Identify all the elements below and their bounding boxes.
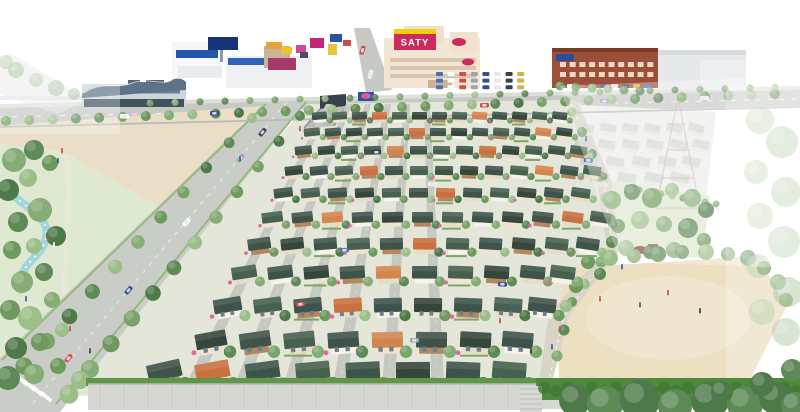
roof-light — [448, 266, 473, 272]
parked-car — [459, 85, 466, 89]
garden-flowers — [270, 199, 273, 202]
house — [372, 112, 387, 123]
building-window — [599, 72, 605, 77]
garden-flowers — [292, 156, 295, 159]
tree-highlight — [519, 153, 522, 156]
tree-highlight — [400, 277, 405, 282]
tree-highlight — [695, 384, 714, 403]
parked-car — [506, 79, 513, 83]
tree-highlight — [509, 134, 512, 137]
tree-highlight — [522, 91, 526, 95]
tree-highlight — [303, 174, 307, 178]
parked-car — [506, 72, 513, 76]
person-head — [89, 348, 91, 350]
house — [332, 111, 348, 123]
garden-hedge — [435, 180, 451, 182]
tree-highlight — [538, 98, 543, 103]
tree-highlight — [555, 311, 561, 317]
tree-highlight — [453, 174, 457, 178]
tree-highlight — [33, 334, 42, 343]
tree-highlight — [404, 134, 407, 137]
tree-highlight — [283, 221, 287, 225]
tree-highlight — [83, 361, 92, 370]
tree-highlight — [2, 302, 12, 312]
commercial-building — [300, 52, 308, 58]
house — [409, 128, 425, 139]
roof-light — [410, 146, 427, 150]
person-body — [47, 238, 49, 242]
tree-highlight — [713, 383, 724, 394]
house — [372, 332, 404, 355]
tree-highlight — [313, 346, 319, 352]
garden-hedge — [352, 124, 366, 126]
tree-highlight — [372, 94, 376, 98]
tree-highlight — [21, 170, 30, 179]
tree-highlight — [561, 301, 567, 307]
house — [413, 238, 436, 254]
person-head — [511, 302, 513, 304]
tree-highlight — [275, 137, 280, 142]
building-window — [570, 72, 576, 77]
tree-highlight — [44, 156, 52, 164]
garden-flowers — [330, 314, 334, 318]
tree-highlight — [347, 196, 351, 200]
roof-light — [360, 166, 378, 171]
person-body — [639, 304, 641, 308]
tree-highlight — [383, 134, 386, 137]
tree-highlight — [489, 346, 495, 352]
tree-highlight — [481, 311, 487, 317]
roof-light — [364, 146, 381, 150]
person-body — [621, 266, 623, 270]
garden-hedge — [328, 202, 345, 204]
house — [294, 145, 312, 159]
house-window — [433, 347, 437, 352]
tree-highlight — [422, 93, 426, 97]
tree-highlight — [467, 134, 470, 137]
house-window — [389, 347, 393, 352]
tree-highlight — [328, 174, 332, 178]
parked-car — [482, 85, 489, 89]
house — [509, 165, 528, 179]
roof-light — [410, 166, 428, 170]
roof-light — [412, 212, 433, 216]
parked-car — [436, 85, 443, 89]
house — [524, 145, 542, 159]
tree-highlight — [381, 153, 384, 156]
person-body — [530, 350, 532, 354]
house — [312, 111, 328, 123]
tree-highlight — [335, 153, 338, 156]
tree-highlight — [357, 346, 363, 352]
tree-highlight — [421, 102, 426, 107]
garden-flowers — [444, 281, 448, 285]
house — [333, 297, 362, 318]
garden-flowers — [364, 137, 367, 140]
house — [340, 265, 366, 284]
tree-highlight — [188, 110, 193, 115]
commercial-building — [208, 37, 238, 50]
person-body — [57, 160, 59, 164]
house — [516, 187, 536, 202]
tree-highlight — [523, 221, 527, 225]
ground-shape — [586, 276, 750, 360]
commercial-building — [452, 38, 466, 46]
house — [355, 188, 375, 202]
tree-highlight — [52, 359, 60, 367]
garden-flowers — [357, 176, 360, 179]
roof-light — [432, 112, 447, 115]
person-body — [699, 310, 701, 314]
house — [472, 211, 494, 227]
person-head — [699, 308, 701, 310]
person-head — [499, 318, 501, 320]
tree-highlight — [156, 212, 162, 218]
garden-hedge — [448, 285, 471, 287]
house-window — [507, 346, 512, 351]
house — [451, 128, 467, 140]
parked-car — [517, 85, 524, 89]
tree-highlight — [281, 311, 287, 317]
tree-highlight — [375, 104, 380, 109]
tree-highlight — [595, 269, 601, 275]
tree-highlight — [26, 366, 36, 376]
garden-flowers — [456, 350, 461, 355]
parked-car — [494, 85, 501, 89]
house — [341, 145, 359, 158]
tree-highlight — [225, 346, 231, 352]
garden-hedge — [535, 180, 551, 182]
car — [120, 114, 129, 119]
roof-light — [414, 298, 442, 304]
house — [479, 146, 497, 159]
tree-highlight — [328, 277, 333, 282]
garden-hedge — [432, 124, 446, 126]
garden-hedge — [446, 255, 467, 257]
house — [456, 146, 473, 159]
house — [416, 332, 447, 354]
tree-highlight — [503, 174, 507, 178]
garden-flowers — [490, 137, 493, 140]
tree-highlight — [553, 351, 559, 357]
tree-highlight — [133, 236, 140, 243]
roof-light — [409, 128, 425, 131]
tree-highlight — [46, 293, 54, 301]
house — [321, 211, 343, 227]
tree-highlight — [515, 99, 520, 104]
house-window — [220, 312, 225, 317]
roof-light — [396, 362, 430, 369]
tree-highlight — [731, 389, 749, 407]
house-window — [247, 347, 252, 352]
tree-highlight — [398, 103, 403, 108]
tree-highlight — [168, 262, 175, 269]
tree-highlight — [37, 264, 46, 273]
tree-highlight — [320, 196, 324, 200]
garden-flowers — [244, 251, 248, 255]
tree-highlight — [752, 374, 764, 386]
commercial-building — [266, 42, 282, 49]
person-body — [61, 150, 63, 154]
person-head — [667, 290, 669, 292]
garden-hedge — [544, 202, 561, 204]
building-window — [589, 62, 595, 67]
tree-highlight — [86, 285, 93, 292]
person-head — [57, 158, 59, 160]
house — [483, 265, 509, 284]
car — [428, 182, 437, 187]
tree-highlight — [472, 277, 477, 282]
house — [479, 237, 503, 254]
house — [318, 145, 336, 158]
house — [291, 211, 313, 228]
parked-car — [494, 72, 501, 76]
parked-car — [436, 72, 443, 76]
person-head — [53, 242, 55, 244]
parked-car — [482, 79, 489, 83]
house-window — [340, 312, 344, 317]
tree-highlight — [624, 383, 644, 403]
person-body — [53, 244, 55, 248]
tree-highlight — [388, 118, 391, 121]
house — [410, 146, 427, 158]
house — [374, 298, 403, 318]
commercial-building — [281, 47, 292, 54]
tree-highlight — [447, 93, 451, 97]
house — [387, 146, 404, 158]
house — [328, 187, 348, 202]
garden-flowers — [432, 176, 435, 179]
garden-hedge — [454, 319, 479, 321]
house-window — [258, 346, 263, 351]
tree-highlight — [521, 311, 527, 317]
tree-highlight — [197, 99, 201, 103]
house — [436, 188, 455, 202]
person-head — [639, 302, 641, 304]
tree-highlight — [343, 221, 347, 225]
roof-light — [446, 361, 480, 369]
car — [372, 150, 381, 155]
house — [327, 331, 359, 355]
building-window — [570, 62, 576, 67]
garden-hedge — [341, 159, 356, 161]
garden-hedge — [562, 228, 581, 230]
tree-highlight — [361, 311, 367, 317]
tree-highlight — [590, 196, 594, 200]
house-window — [499, 311, 503, 316]
parked-car — [459, 79, 466, 83]
garden-flowers — [541, 251, 545, 255]
tree-highlight — [328, 118, 331, 121]
tree-highlight — [402, 248, 407, 253]
tree-highlight — [445, 346, 451, 352]
tree-highlight — [189, 237, 196, 244]
tree-highlight — [73, 372, 82, 381]
tree-highlight — [296, 112, 301, 117]
person-body — [89, 350, 91, 354]
house — [452, 112, 467, 123]
garden-hedge — [284, 355, 312, 357]
tree-highlight — [321, 311, 327, 317]
building-window — [647, 72, 653, 77]
roof-light — [416, 332, 447, 339]
garden-flowers — [192, 350, 197, 355]
person-head — [599, 296, 601, 298]
tree-highlight — [4, 150, 16, 162]
tree-highlight — [408, 118, 411, 121]
tree-highlight — [401, 311, 407, 317]
garden-hedge — [460, 355, 488, 357]
tree-highlight — [104, 336, 113, 345]
tree-highlight — [232, 187, 238, 193]
house — [493, 127, 510, 139]
tree-highlight — [247, 98, 251, 102]
tree-highlight — [56, 324, 63, 331]
tree-highlight — [374, 196, 378, 200]
garden-hedge — [304, 285, 327, 287]
tree-highlight — [428, 174, 432, 178]
hedge-bump — [538, 382, 550, 394]
person-head — [69, 326, 71, 328]
house-window — [203, 348, 208, 353]
house — [410, 166, 428, 179]
person-body — [239, 158, 241, 162]
tree-highlight — [455, 196, 459, 200]
house — [472, 112, 488, 123]
garden-flowers — [351, 199, 354, 202]
garden-flowers — [301, 137, 304, 140]
tree-highlight — [530, 134, 533, 137]
person-head — [239, 156, 241, 158]
tree-highlight — [63, 310, 71, 318]
tree-highlight — [536, 196, 540, 200]
commercial-building — [176, 50, 218, 58]
garden-hedge — [322, 228, 341, 230]
tree-highlight — [445, 101, 450, 106]
roof-light — [392, 112, 407, 115]
tree-highlight — [10, 214, 20, 224]
tree-highlight — [17, 359, 26, 368]
house — [448, 266, 474, 284]
car — [210, 111, 219, 116]
house-window — [380, 311, 384, 315]
roof-light — [372, 112, 387, 116]
tree-highlight — [401, 196, 405, 200]
house — [442, 212, 463, 227]
house — [382, 188, 401, 202]
garden-hedge — [525, 159, 540, 161]
person-body — [69, 328, 71, 332]
parked-car — [471, 72, 478, 76]
tree-highlight — [401, 346, 407, 352]
tree-highlight — [472, 92, 476, 96]
tree-highlight — [397, 94, 401, 98]
tree-highlight — [348, 118, 351, 121]
house-window — [533, 310, 537, 315]
commercial-building — [220, 50, 223, 62]
commercial-building — [556, 54, 574, 61]
house — [346, 128, 363, 140]
house — [385, 166, 403, 179]
saty-sign-label: SATY — [401, 38, 430, 49]
garden-flowers — [427, 137, 430, 140]
roof-light — [433, 146, 450, 150]
house-window — [350, 311, 354, 316]
tree-highlight — [322, 96, 326, 100]
tree-highlight — [235, 109, 240, 114]
house-window — [334, 347, 339, 352]
commercial-building — [330, 34, 342, 42]
person-body — [499, 320, 501, 324]
commercial-building — [328, 44, 337, 55]
person-body — [599, 298, 601, 302]
garden-hedge — [346, 140, 360, 142]
house-window — [466, 346, 471, 351]
garden-flowers — [528, 224, 531, 227]
car — [498, 282, 507, 287]
person-body — [511, 304, 513, 308]
house-window — [509, 311, 513, 316]
tree-highlight — [563, 196, 567, 200]
tree-highlight — [256, 277, 261, 282]
tree-highlight — [211, 212, 218, 219]
building-window — [589, 72, 595, 77]
commercial-building — [658, 50, 746, 55]
garden-hedge — [430, 140, 444, 142]
parked-car — [517, 72, 524, 76]
person-head — [559, 326, 561, 328]
tree-highlight — [572, 134, 575, 137]
garden-flowers — [549, 120, 551, 122]
house — [335, 165, 354, 179]
tree-highlight — [591, 389, 609, 407]
roof-light — [387, 146, 404, 150]
tree-highlight — [225, 138, 230, 143]
tree-highlight — [428, 196, 432, 200]
tree-highlight — [364, 277, 369, 282]
roof-light — [456, 146, 473, 150]
tree-highlight — [5, 242, 14, 251]
tree-highlight — [534, 248, 539, 253]
tree-highlight — [20, 308, 32, 320]
garden-flowers — [499, 156, 502, 159]
tree-highlight — [403, 221, 407, 225]
tree-highlight — [313, 221, 317, 225]
house — [360, 166, 379, 179]
tree-highlight — [598, 248, 603, 253]
house-window — [345, 346, 350, 351]
roof-light — [367, 128, 383, 132]
tree-highlight — [448, 118, 451, 121]
person-head — [61, 148, 63, 150]
parked-car — [494, 79, 501, 83]
house-window — [420, 311, 424, 315]
foreground-shape — [0, 38, 120, 134]
tree-highlight — [574, 277, 579, 282]
house — [382, 212, 403, 227]
garden-flowers — [546, 281, 550, 285]
building-window — [628, 72, 634, 77]
house — [376, 266, 401, 284]
tree-highlight — [583, 221, 587, 225]
tree-highlight — [248, 114, 253, 119]
house — [501, 211, 523, 227]
tree-highlight — [441, 311, 447, 317]
tree-highlight — [468, 248, 473, 253]
person-head — [47, 236, 49, 238]
foreground-shape — [88, 384, 536, 410]
house — [309, 165, 328, 179]
